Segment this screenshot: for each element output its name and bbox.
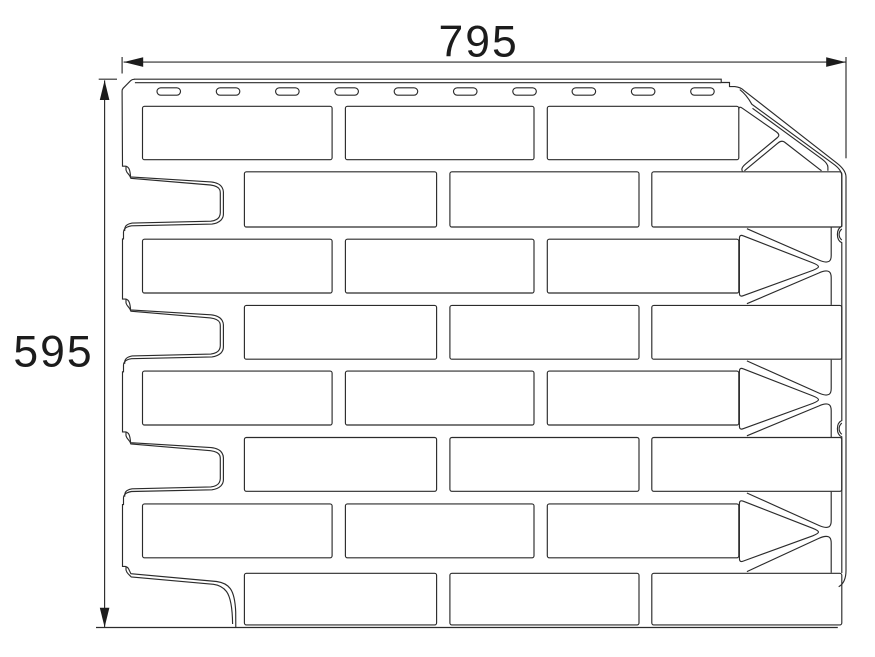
svg-text:595: 595 (13, 327, 93, 376)
svg-text:795: 795 (438, 18, 518, 67)
